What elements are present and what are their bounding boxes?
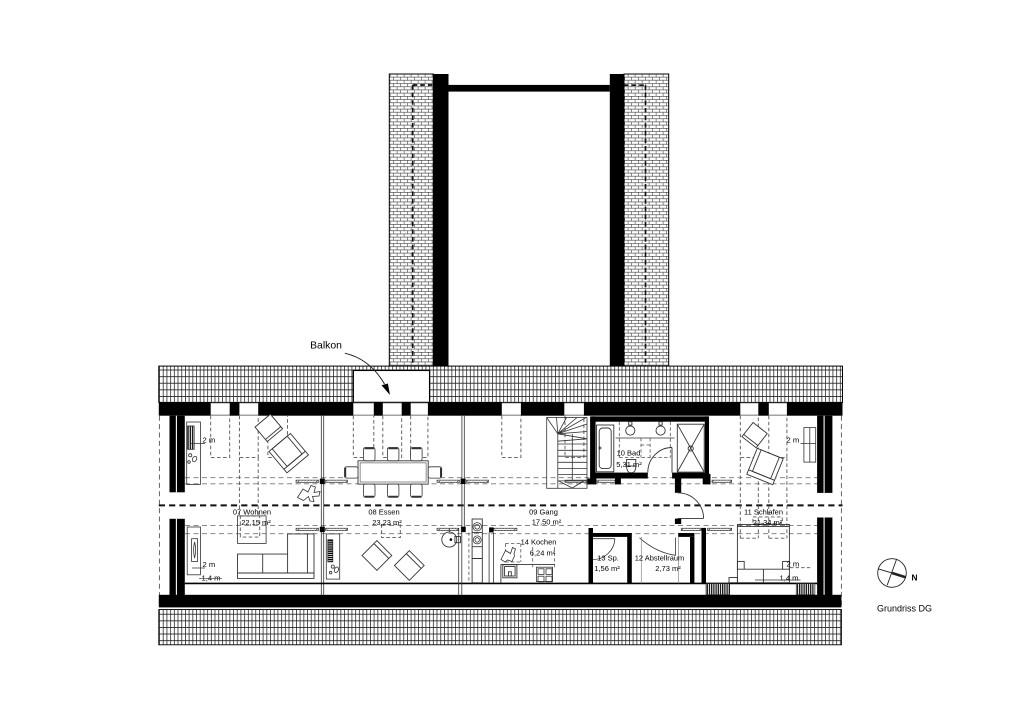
- svg-text:2 m: 2 m: [787, 435, 800, 444]
- svg-text:Balkon: Balkon: [310, 341, 342, 352]
- svg-text:14 Kochen: 14 Kochen: [521, 538, 557, 547]
- svg-text:2 m: 2 m: [787, 559, 800, 568]
- svg-text:07 Wohnen: 07 Wohnen: [233, 508, 271, 517]
- svg-text:12 Abstellraum: 12 Abstellraum: [635, 553, 685, 562]
- svg-text:11 Schlafen: 11 Schlafen: [744, 508, 783, 517]
- svg-text:13 Sp.: 13 Sp.: [597, 553, 619, 562]
- svg-text:2,73 m²: 2,73 m²: [655, 564, 681, 573]
- svg-text:21,34 m²: 21,34 m²: [753, 518, 783, 527]
- svg-text:1,56 m²: 1,56 m²: [594, 564, 620, 573]
- svg-text:09 Gang: 09 Gang: [529, 508, 558, 517]
- svg-text:N: N: [912, 573, 918, 583]
- svg-text:08 Essen: 08 Essen: [368, 508, 399, 517]
- svg-text:2 m: 2 m: [203, 435, 216, 444]
- svg-text:1,4 m: 1,4 m: [780, 574, 799, 583]
- svg-text:10 Bad: 10 Bad: [617, 449, 641, 458]
- svg-text:2 m: 2 m: [203, 560, 216, 569]
- svg-text:Grundriss DG: Grundriss DG: [877, 604, 932, 614]
- svg-text:22,15 m²: 22,15 m²: [241, 518, 271, 527]
- svg-text:6,24 m²: 6,24 m²: [530, 549, 556, 558]
- svg-text:23,23 m²: 23,23 m²: [372, 518, 402, 527]
- svg-text:5,31 m²: 5,31 m²: [616, 460, 642, 469]
- svg-text:17,50 m²: 17,50 m²: [532, 517, 562, 526]
